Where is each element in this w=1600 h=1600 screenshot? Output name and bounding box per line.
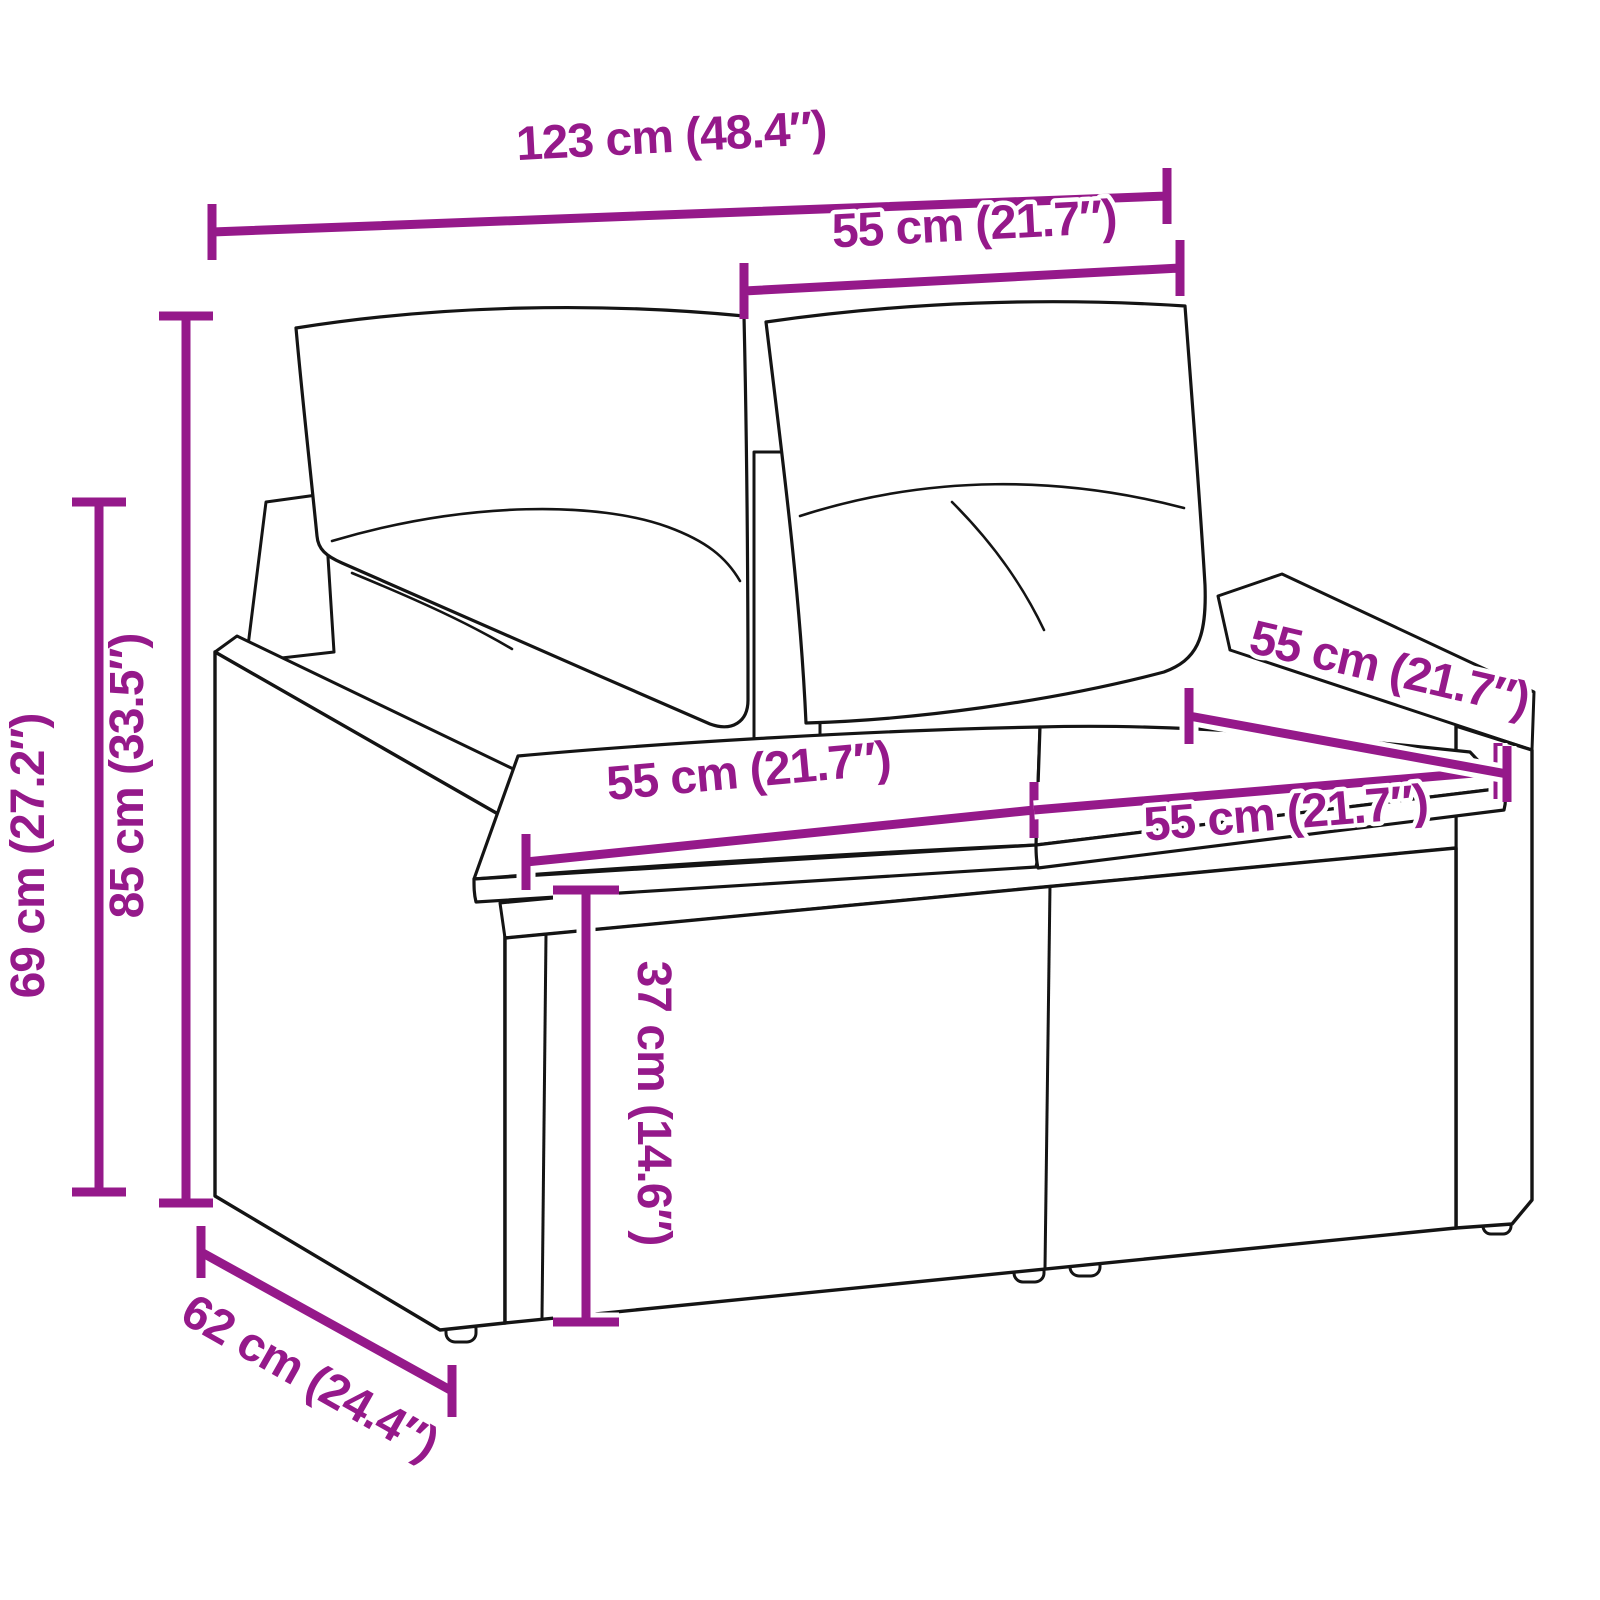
back-cushion-left [296,308,748,727]
dim-overall-height: 85 cm (33.5″) [101,316,213,1203]
dim-overall-height-line [159,316,213,1203]
product-dimension-diagram-page: 123 cm (48.4″) 55 cm (21.7″) 85 cm (33.5… [0,0,1600,1600]
dim-back-frame-height-label: 69 cm (27.2″) [2,714,55,999]
back-cushion-right [766,302,1205,723]
dim-overall-width-label: 123 cm (48.4″) [515,102,828,171]
dim-overall-height-label: 85 cm (33.5″) [101,634,154,919]
dim-seat-height-label: 37 cm (14.6″) [627,961,680,1246]
product-dimension-diagram: 123 cm (48.4″) 55 cm (21.7″) 85 cm (33.5… [0,0,1600,1600]
dim-back-section-width-label: 55 cm (21.7″) [831,191,1118,259]
